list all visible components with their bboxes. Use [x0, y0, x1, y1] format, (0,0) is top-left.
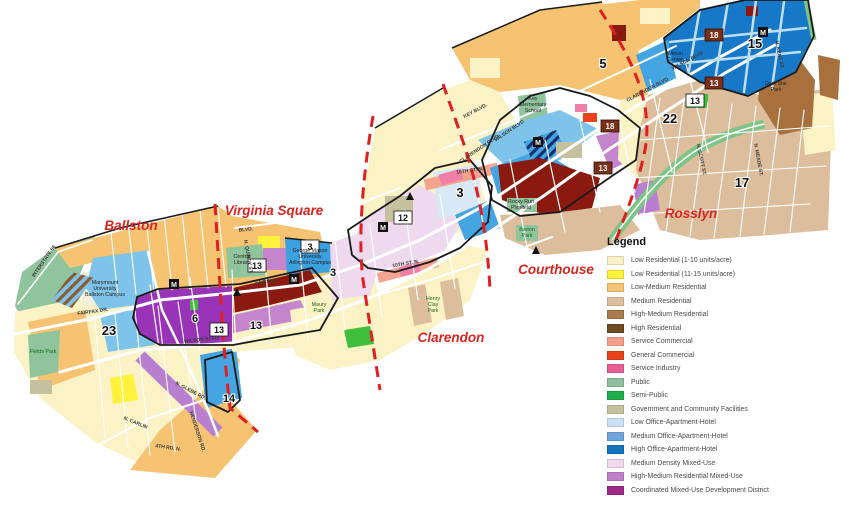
legend-item-label: Medium Office-Apartment-Hotel — [631, 433, 728, 440]
svg-text:18: 18 — [606, 122, 615, 131]
legend-item: Low Residential (11-15 units/acre) — [605, 268, 847, 282]
legend-item: Low Residential (1-10 units/acre) — [605, 254, 847, 268]
legend: Legend Low Residential (1-10 units/acre)… — [605, 236, 847, 497]
legend-swatch — [607, 364, 624, 373]
legend-swatch — [607, 351, 624, 360]
legend-item-label: Low Office-Apartment-Hotel — [631, 419, 716, 426]
sector-badge: 13 — [686, 94, 704, 107]
place-label-rocky-run: Rocky Run Playfield — [508, 199, 534, 211]
legend-item: Low-Medium Residential — [605, 281, 847, 295]
svg-text:Library: Library — [234, 260, 251, 266]
svg-text:13: 13 — [599, 164, 608, 173]
sector-badge: 5 — [599, 56, 606, 71]
metro-station-virginia-square: M — [289, 274, 299, 284]
sector-badge: 14 — [223, 393, 236, 405]
legend-item-label: Service Industry — [631, 365, 680, 372]
sector-badge: 23 — [102, 323, 116, 338]
place-label-wilson-center: Wilson Center — [667, 51, 683, 63]
legend-swatch — [607, 486, 624, 495]
area-label-courthouse: Courthouse — [518, 262, 594, 277]
legend-item: High Office-Apartment-Hotel — [605, 443, 847, 457]
legend-item-label: Coordinated Mixed-Use Development Distri… — [631, 487, 769, 494]
legend-swatch — [607, 459, 624, 468]
metro-station-clarendon: M — [378, 222, 388, 232]
metro-icon: M — [291, 277, 297, 284]
legend-item-label: High Residential — [631, 325, 681, 332]
sector-badge: 13 — [210, 323, 228, 336]
svg-text:13: 13 — [214, 325, 224, 335]
legend-swatch — [607, 270, 624, 279]
sector-badge: 22 — [663, 111, 677, 126]
svg-text:18: 18 — [710, 31, 719, 40]
legend-swatch — [607, 310, 624, 319]
legend-swatch — [607, 283, 624, 292]
area-label-ballston: Ballston — [104, 218, 157, 233]
svg-text:Park: Park — [522, 233, 533, 239]
place-label-maury-park: Maury Park — [312, 302, 327, 314]
legend-swatch — [607, 445, 624, 454]
svg-text:13: 13 — [690, 96, 700, 106]
svg-text:Playfield: Playfield — [511, 205, 531, 211]
legend-item: High Residential — [605, 322, 847, 336]
legend-swatch — [607, 405, 624, 414]
area-label-rosslyn: Rosslyn — [665, 206, 718, 221]
sector-badge: 17 — [735, 175, 749, 190]
legend-item: Medium Residential — [605, 295, 847, 309]
svg-text:Park: Park — [428, 308, 439, 314]
legend-swatch — [607, 324, 624, 333]
sector-badge: 3 — [456, 185, 463, 200]
legend-item: High-Medium Residential Mixed-Use — [605, 470, 847, 484]
svg-text:School: School — [525, 108, 541, 114]
place-label-henry-clay-park: Henry Clay Park — [426, 296, 440, 314]
svg-text:13: 13 — [710, 79, 719, 88]
svg-text:Arlington Campus: Arlington Campus — [289, 260, 331, 266]
glup-map-page: M M M M M 23 6 13 13 13 — [0, 0, 849, 510]
legend-item: Service Industry — [605, 362, 847, 376]
place-label-fields-park: Fields Park — [30, 349, 57, 355]
legend-item: Semi-Public — [605, 389, 847, 403]
legend-item-label: Low Residential (11-15 units/acre) — [631, 271, 735, 278]
metro-icon: M — [171, 282, 177, 289]
area-label-clarendon: Clarendon — [418, 330, 485, 345]
legend-item-label: Government and Community Facilities — [631, 406, 748, 413]
legend-swatch — [607, 472, 624, 481]
legend-swatch — [607, 337, 624, 346]
legend-item: Public — [605, 376, 847, 390]
legend-item: Medium Office-Apartment-Hotel — [605, 430, 847, 444]
legend-item: Government and Community Facilities — [605, 403, 847, 417]
sector-badge: 13 — [250, 320, 262, 332]
legend-item-label: Public — [631, 379, 650, 386]
legend-item-label: High-Medium Residential Mixed-Use — [631, 473, 743, 480]
sector-badge: 13 — [594, 162, 612, 174]
legend-swatch — [607, 418, 624, 427]
metro-icon: M — [535, 140, 541, 147]
legend-item: High-Medium Residential — [605, 308, 847, 322]
sector-badge: 13 — [705, 77, 723, 89]
legend-item-label: Low-Medium Residential — [631, 284, 706, 291]
legend-item-label: Low Residential (1-10 units/acre) — [631, 257, 732, 264]
metro-station-courthouse: M — [533, 137, 543, 147]
legend-item-label: High-Medium Residential — [631, 311, 708, 318]
sector-badge: 15 — [748, 36, 762, 51]
metro-icon: M — [380, 225, 386, 232]
legend-title: Legend — [607, 236, 847, 248]
svg-text:Park: Park — [771, 87, 782, 93]
legend-swatch — [607, 378, 624, 387]
legend-item: Service Commercial — [605, 335, 847, 349]
legend-item-label: Medium Residential — [631, 298, 692, 305]
legend-item: Medium Density Mixed-Use — [605, 457, 847, 471]
legend-swatch — [607, 391, 624, 400]
legend-item-label: General Commercial — [631, 352, 694, 359]
metro-station-ballston: M — [169, 279, 179, 289]
svg-text:12: 12 — [398, 213, 408, 223]
legend-item-label: Service Commercial — [631, 338, 693, 345]
legend-swatch — [607, 432, 624, 441]
legend-swatch — [607, 256, 624, 265]
sector-badge: 3 — [330, 267, 336, 279]
sector-badge: 12 — [394, 211, 412, 224]
legend-item: Low Office-Apartment-Hotel — [605, 416, 847, 430]
legend-item: General Commercial — [605, 349, 847, 363]
legend-item-label: Medium Density Mixed-Use — [631, 460, 715, 467]
svg-text:Park: Park — [314, 308, 325, 314]
legend-item-label: Semi-Public — [631, 392, 668, 399]
sector-badge: 18 — [705, 29, 723, 41]
area-label-virginia-square: Virginia Square — [225, 203, 324, 218]
legend-item: Coordinated Mixed-Use Development Distri… — [605, 484, 847, 498]
legend-item-label: High Office-Apartment-Hotel — [631, 446, 717, 453]
sector-badge: 18 — [601, 120, 619, 132]
svg-text:Center: Center — [667, 57, 683, 63]
place-label-central-library: Central Library — [233, 254, 250, 266]
svg-text:Ballston Campus: Ballston Campus — [85, 292, 125, 298]
legend-swatch — [607, 297, 624, 306]
sector-badge: 6 — [192, 313, 198, 325]
